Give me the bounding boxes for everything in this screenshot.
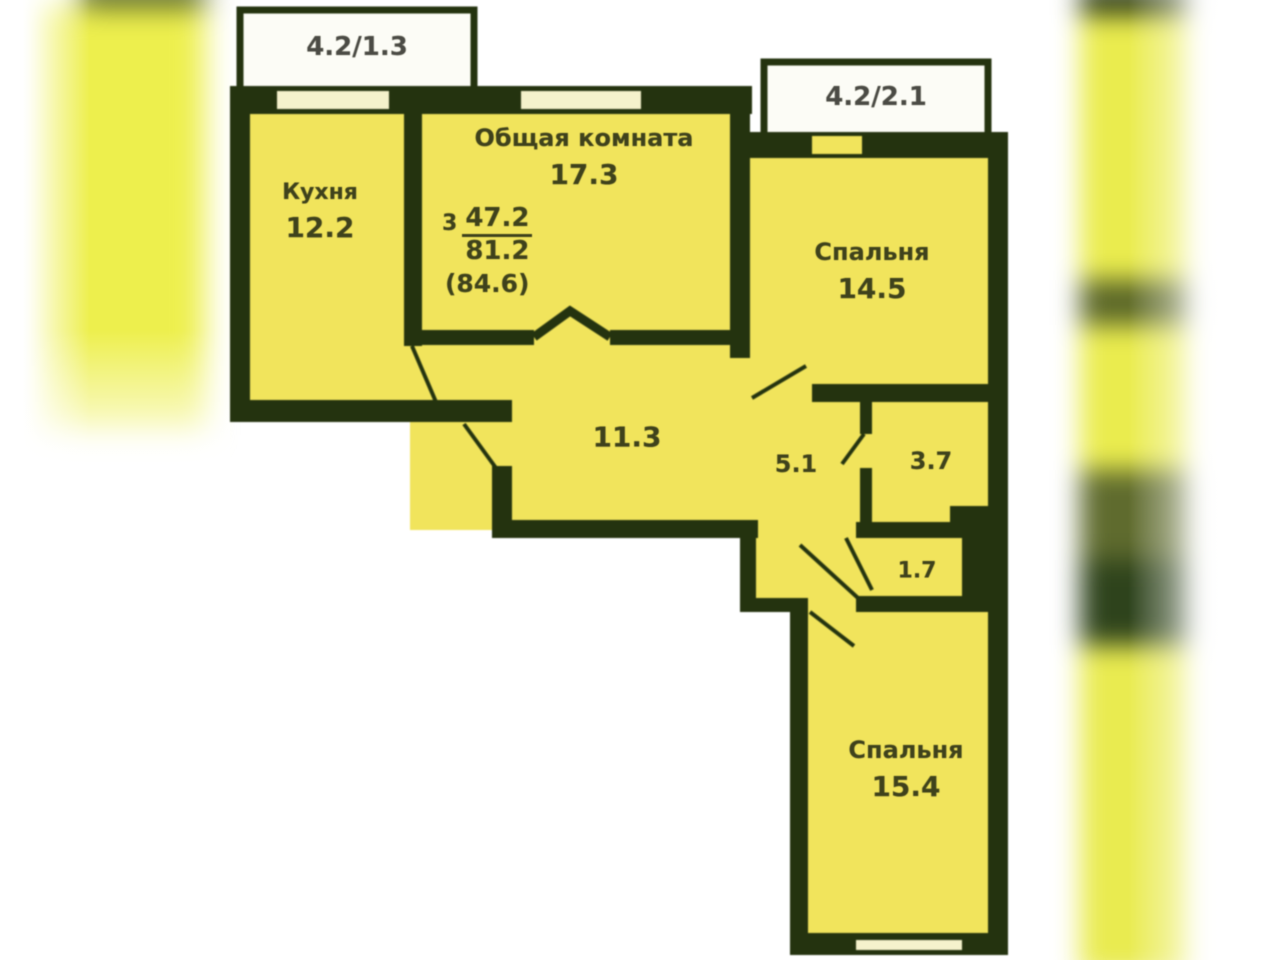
hallway-area-label: 11.3 — [592, 421, 661, 454]
bedroom-bottom-window — [856, 940, 962, 950]
room-hallway-area — [410, 330, 755, 530]
bathroom-area-label: 3.7 — [910, 447, 953, 475]
balcony-right-label: 4.2/2.1 — [825, 82, 927, 112]
living-room-name: Общая комната — [475, 124, 694, 152]
corridor-area-label: 5.1 — [775, 450, 818, 478]
bedroom-top-label: Спальня 14.5 — [814, 238, 929, 305]
summary-rooms-count: 3 — [442, 211, 457, 236]
floorplan-canvas: 4.2/1.3 4.2/2.1 Общая комната 17.3 Кухня… — [0, 0, 1280, 960]
living-room-label: Общая комната 17.3 — [475, 124, 694, 191]
balcony-left-label: 4.2/1.3 — [306, 32, 408, 62]
bedroom-bottom-label: Спальня 15.4 — [848, 736, 963, 803]
summary-apartment-area: 81.2 — [465, 237, 529, 267]
kitchen-name: Кухня — [282, 180, 358, 205]
kitchen-label: Кухня 12.2 — [282, 180, 358, 244]
summary-living-area: 47.2 — [462, 204, 532, 237]
room-kitchen-area — [240, 90, 415, 410]
bedroom-bottom-area: 15.4 — [848, 770, 963, 803]
bedroom-top-balcony-door — [812, 136, 862, 154]
storage-area-label: 1.7 — [898, 559, 937, 584]
living-room-area: 17.3 — [475, 158, 694, 191]
summary-area-fraction: 47.2 81.2 — [462, 204, 532, 267]
bedroom-bottom-name: Спальня — [848, 736, 963, 764]
summary-total-area: (84.6) — [445, 269, 530, 298]
apartment-summary: 3 47.2 81.2 (84.6) — [442, 204, 532, 298]
kitchen-area: 12.2 — [282, 211, 358, 244]
kitchen-window — [277, 91, 389, 109]
bedroom-top-name: Спальня — [814, 238, 929, 266]
bedroom-top-area: 14.5 — [814, 272, 929, 305]
living-room-window — [521, 91, 641, 109]
